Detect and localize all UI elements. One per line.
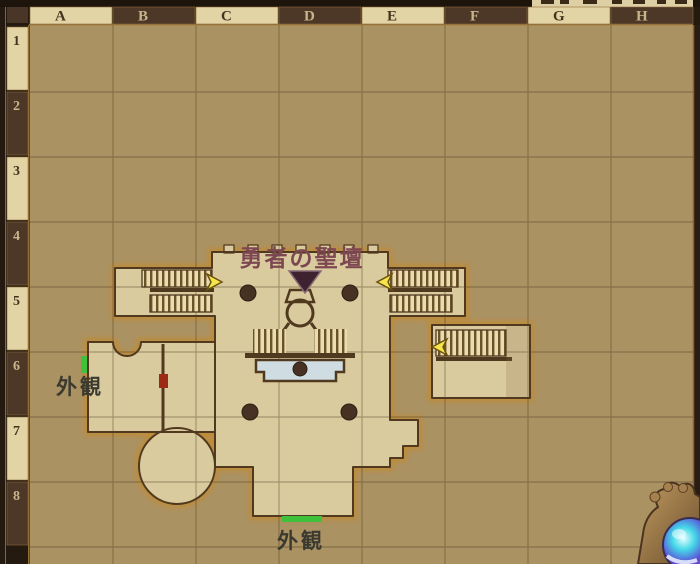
game-map-window: A B C D E F G H 1 2 3 4 5 6 7 8 — [0, 0, 700, 564]
row-label-2: 2 — [13, 99, 20, 114]
stairs-east-landing — [436, 357, 512, 361]
column-label-g: G — [553, 9, 565, 25]
column-label-d: D — [304, 9, 315, 25]
door-marker — [159, 374, 168, 388]
stairs-northwest-upper — [142, 270, 212, 287]
grid-corner-cell — [7, 7, 28, 23]
west-exit-marker — [81, 356, 87, 373]
stairs-northwest-lower — [150, 295, 212, 312]
pillar — [240, 285, 256, 301]
pillar — [242, 404, 258, 420]
location-name-label: 勇者の聖壇 — [240, 245, 365, 272]
south-exit-label: 外観 — [277, 529, 325, 553]
altar-rail-left — [253, 329, 286, 353]
stairs-northeast-landing — [388, 288, 452, 292]
column-label-h: H — [636, 9, 648, 25]
west-exit-label: 外観 — [56, 375, 104, 399]
row-label-1: 1 — [13, 34, 20, 49]
altar-rail-right — [314, 329, 347, 353]
row-label-8: 8 — [13, 489, 20, 504]
row-label-5: 5 — [13, 294, 20, 309]
row-label-7: 7 — [13, 424, 20, 439]
pillar — [341, 404, 357, 420]
column-label-b: B — [138, 9, 148, 25]
column-label-a: A — [55, 9, 66, 25]
column-label-f: F — [470, 9, 479, 25]
row-label-6: 6 — [13, 359, 20, 374]
row-label-3: 3 — [13, 164, 20, 179]
map-canvas[interactable]: A B C D E F G H 1 2 3 4 5 6 7 8 — [0, 0, 700, 564]
column-label-e: E — [387, 9, 397, 25]
row-label-4: 4 — [13, 229, 20, 244]
column-label-c: C — [221, 9, 232, 25]
altar-orb-socket — [293, 362, 307, 376]
stairs-northeast-lower — [390, 295, 452, 312]
south-exit-marker — [282, 516, 322, 522]
stairs-northwest-landing — [150, 288, 214, 292]
cutoff-titlebar-fragment — [532, 0, 693, 7]
stairs-east-room — [436, 330, 506, 356]
stairs-northeast-upper — [388, 270, 458, 287]
altar-step-edge — [245, 353, 355, 358]
pillar — [342, 285, 358, 301]
